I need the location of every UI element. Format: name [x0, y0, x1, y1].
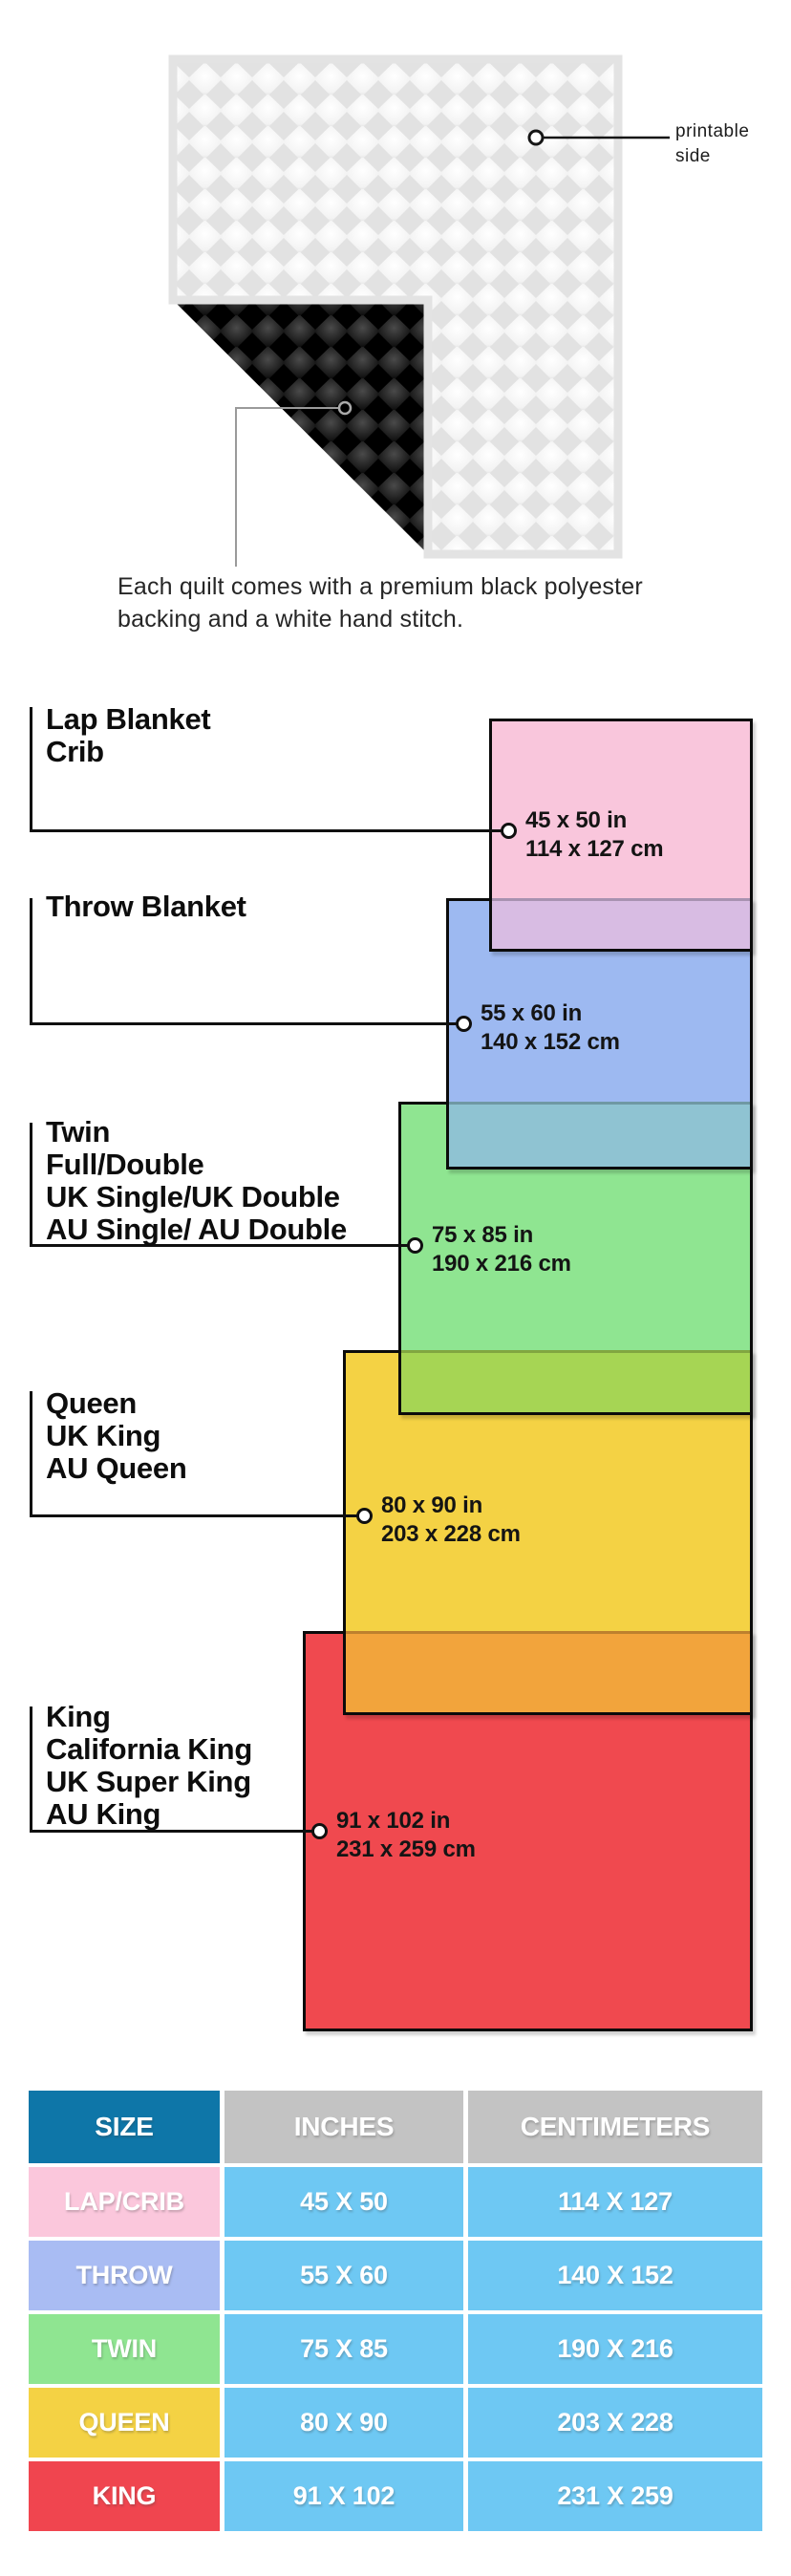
size-dimensions-queen-cm: 203 x 228 cm	[381, 1520, 521, 1549]
row-king-inches-cell: 91 X 102	[224, 2461, 463, 2531]
size-label-lap-line1: Lap Blanket	[46, 703, 210, 736]
size-dimensions-king-cm: 231 x 259 cm	[336, 1835, 476, 1864]
overlap-band-throw-twin	[449, 1102, 750, 1167]
row-twin-size-cell: TWIN	[29, 2314, 220, 2384]
size-dimensions-throw: 55 x 60 in 140 x 152 cm	[481, 999, 620, 1057]
printable-leader-circle	[529, 131, 543, 144]
leader-circle-king	[311, 1823, 328, 1839]
leader-circle-queen	[356, 1508, 373, 1524]
quilt-caption-line1: Each quilt comes with a premium black po…	[118, 570, 643, 603]
size-label-queen-line3: AU Queen	[46, 1452, 186, 1485]
size-label-twin-line3: UK Single/UK Double	[46, 1181, 347, 1213]
size-label-queen-line1: Queen	[46, 1387, 186, 1420]
size-label-king-line4: AU King	[46, 1798, 252, 1831]
leader-line-throw	[30, 898, 32, 1025]
size-dimensions-lap: 45 x 50 in 114 x 127 cm	[525, 806, 663, 864]
leader-circle-twin	[407, 1237, 423, 1254]
leader-line-queen	[30, 1391, 32, 1517]
header-cell-inches: INCHES	[224, 2091, 463, 2163]
size-dimensions-twin: 75 x 85 in 190 x 216 cm	[432, 1221, 571, 1278]
printable-side-label-line1: printable	[675, 119, 749, 144]
size-label-king-line2: California King	[46, 1733, 252, 1766]
row-king-size-cell: KING	[29, 2461, 220, 2531]
size-label-lap-line2: Crib	[46, 736, 210, 768]
leader-line-king	[30, 1707, 32, 1833]
row-king-cm-cell: 231 X 259	[468, 2461, 762, 2531]
row-throw-inches-cell: 55 X 60	[224, 2241, 463, 2310]
quilt-caption-line2: backing and a white hand stitch.	[118, 603, 643, 635]
leader-line-twin	[30, 1123, 32, 1247]
leader-circle-throw	[456, 1016, 472, 1032]
size-dimensions-king-in: 91 x 102 in	[336, 1807, 476, 1835]
size-label-throw-line1: Throw Blanket	[46, 891, 246, 923]
size-label-queen: Queen UK King AU Queen	[46, 1387, 186, 1485]
leader-line-throw-h	[30, 1022, 459, 1025]
leader-line-queen-h	[30, 1514, 359, 1517]
row-twin-cm-cell: 190 X 216	[468, 2314, 762, 2384]
size-dimensions-king: 91 x 102 in 231 x 259 cm	[336, 1807, 476, 1864]
row-queen-cm-cell: 203 X 228	[468, 2388, 762, 2458]
size-dimensions-queen: 80 x 90 in 203 x 228 cm	[381, 1492, 521, 1549]
size-label-king-line3: UK Super King	[46, 1766, 252, 1798]
size-dimensions-twin-in: 75 x 85 in	[432, 1221, 571, 1250]
size-label-queen-line2: UK King	[46, 1420, 186, 1452]
size-label-twin-line1: Twin	[46, 1116, 347, 1148]
quilt-caption: Each quilt comes with a premium black po…	[118, 570, 643, 635]
size-dimensions-throw-cm: 140 x 152 cm	[481, 1028, 620, 1057]
quilt-black-backing-flap	[173, 300, 428, 554]
size-dimensions-lap-cm: 114 x 127 cm	[525, 835, 663, 864]
size-table: SIZE INCHES CENTIMETERS LAP/CRIB 45 X 50…	[29, 2091, 764, 2531]
printable-side-label: printable side	[675, 119, 749, 169]
size-label-twin-line4: AU Single/ AU Double	[46, 1213, 347, 1246]
row-throw-cm-cell: 140 X 152	[468, 2241, 762, 2310]
leader-line-lap	[30, 707, 32, 832]
row-lap-inches-cell: 45 X 50	[224, 2167, 463, 2237]
size-dimensions-lap-in: 45 x 50 in	[525, 806, 663, 835]
size-label-twin-line2: Full/Double	[46, 1148, 347, 1181]
size-dimensions-twin-cm: 190 x 216 cm	[432, 1250, 571, 1278]
overlap-band-queen-king	[346, 1631, 750, 1712]
size-label-twin: Twin Full/Double UK Single/UK Double AU …	[46, 1116, 347, 1246]
leader-line-lap-h	[30, 829, 503, 832]
header-cell-centimeters: CENTIMETERS	[468, 2091, 762, 2163]
size-dimensions-throw-in: 55 x 60 in	[481, 999, 620, 1028]
printable-side-label-line2: side	[675, 144, 749, 169]
quilt-illustration	[0, 0, 791, 631]
size-label-king-line1: King	[46, 1701, 252, 1733]
row-queen-inches-cell: 80 X 90	[224, 2388, 463, 2458]
row-lap-size-cell: LAP/CRIB	[29, 2167, 220, 2237]
size-chart-page: printable side Each quilt comes with a p…	[0, 0, 791, 2576]
size-label-king: King California King UK Super King AU Ki…	[46, 1701, 252, 1831]
size-label-lap: Lap Blanket Crib	[46, 703, 210, 768]
size-dimensions-queen-in: 80 x 90 in	[381, 1492, 521, 1520]
row-queen-size-cell: QUEEN	[29, 2388, 220, 2458]
row-lap-cm-cell: 114 X 127	[468, 2167, 762, 2237]
row-throw-size-cell: THROW	[29, 2241, 220, 2310]
overlap-band-twin-queen	[401, 1350, 750, 1412]
header-cell-size: SIZE	[29, 2091, 220, 2163]
leader-circle-lap	[501, 823, 517, 839]
row-twin-inches-cell: 75 X 85	[224, 2314, 463, 2384]
size-label-throw: Throw Blanket	[46, 891, 246, 923]
overlap-band-lap-throw	[492, 898, 750, 949]
